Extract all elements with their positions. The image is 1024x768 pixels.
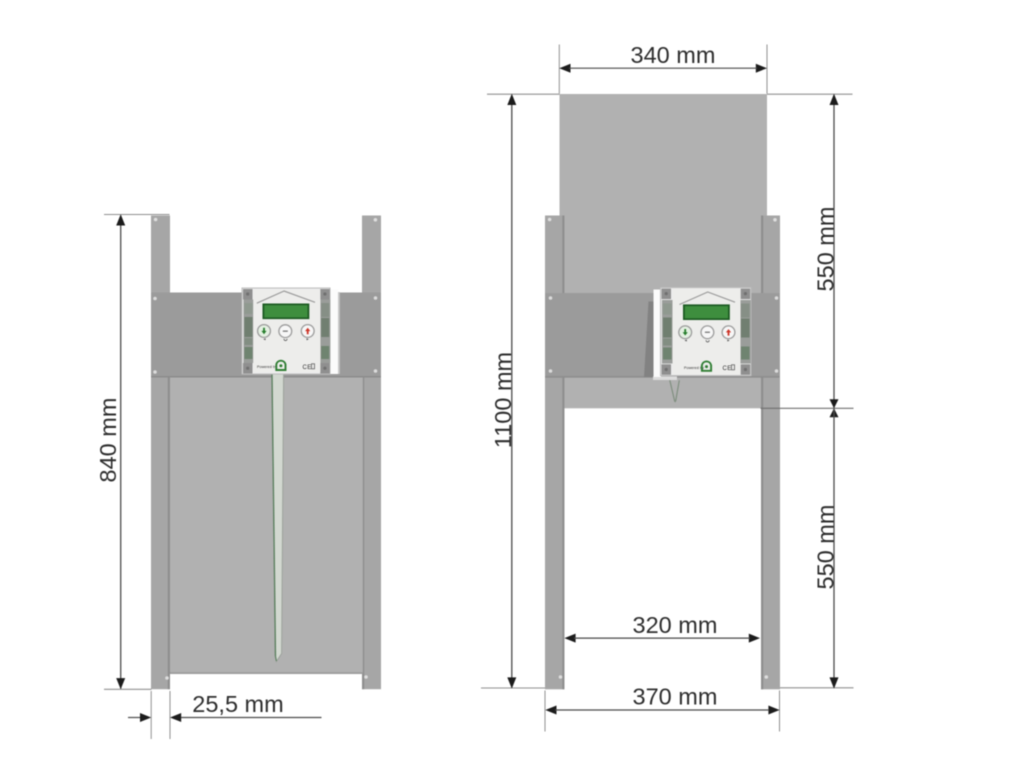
svg-text:840 mm: 840 mm xyxy=(95,398,121,483)
svg-text:550 mm: 550 mm xyxy=(812,505,838,590)
svg-text:CE: CE xyxy=(303,365,312,371)
svg-text:CE: CE xyxy=(723,366,732,372)
svg-text:Powered by: Powered by xyxy=(257,365,277,369)
svg-text:25,5 mm: 25,5 mm xyxy=(192,691,283,717)
svg-text:1100 mm: 1100 mm xyxy=(490,352,516,448)
svg-text:340 mm: 340 mm xyxy=(631,42,716,68)
svg-text:320 mm: 320 mm xyxy=(633,612,718,638)
svg-text:550 mm: 550 mm xyxy=(812,207,838,292)
svg-text:370 mm: 370 mm xyxy=(633,684,718,710)
